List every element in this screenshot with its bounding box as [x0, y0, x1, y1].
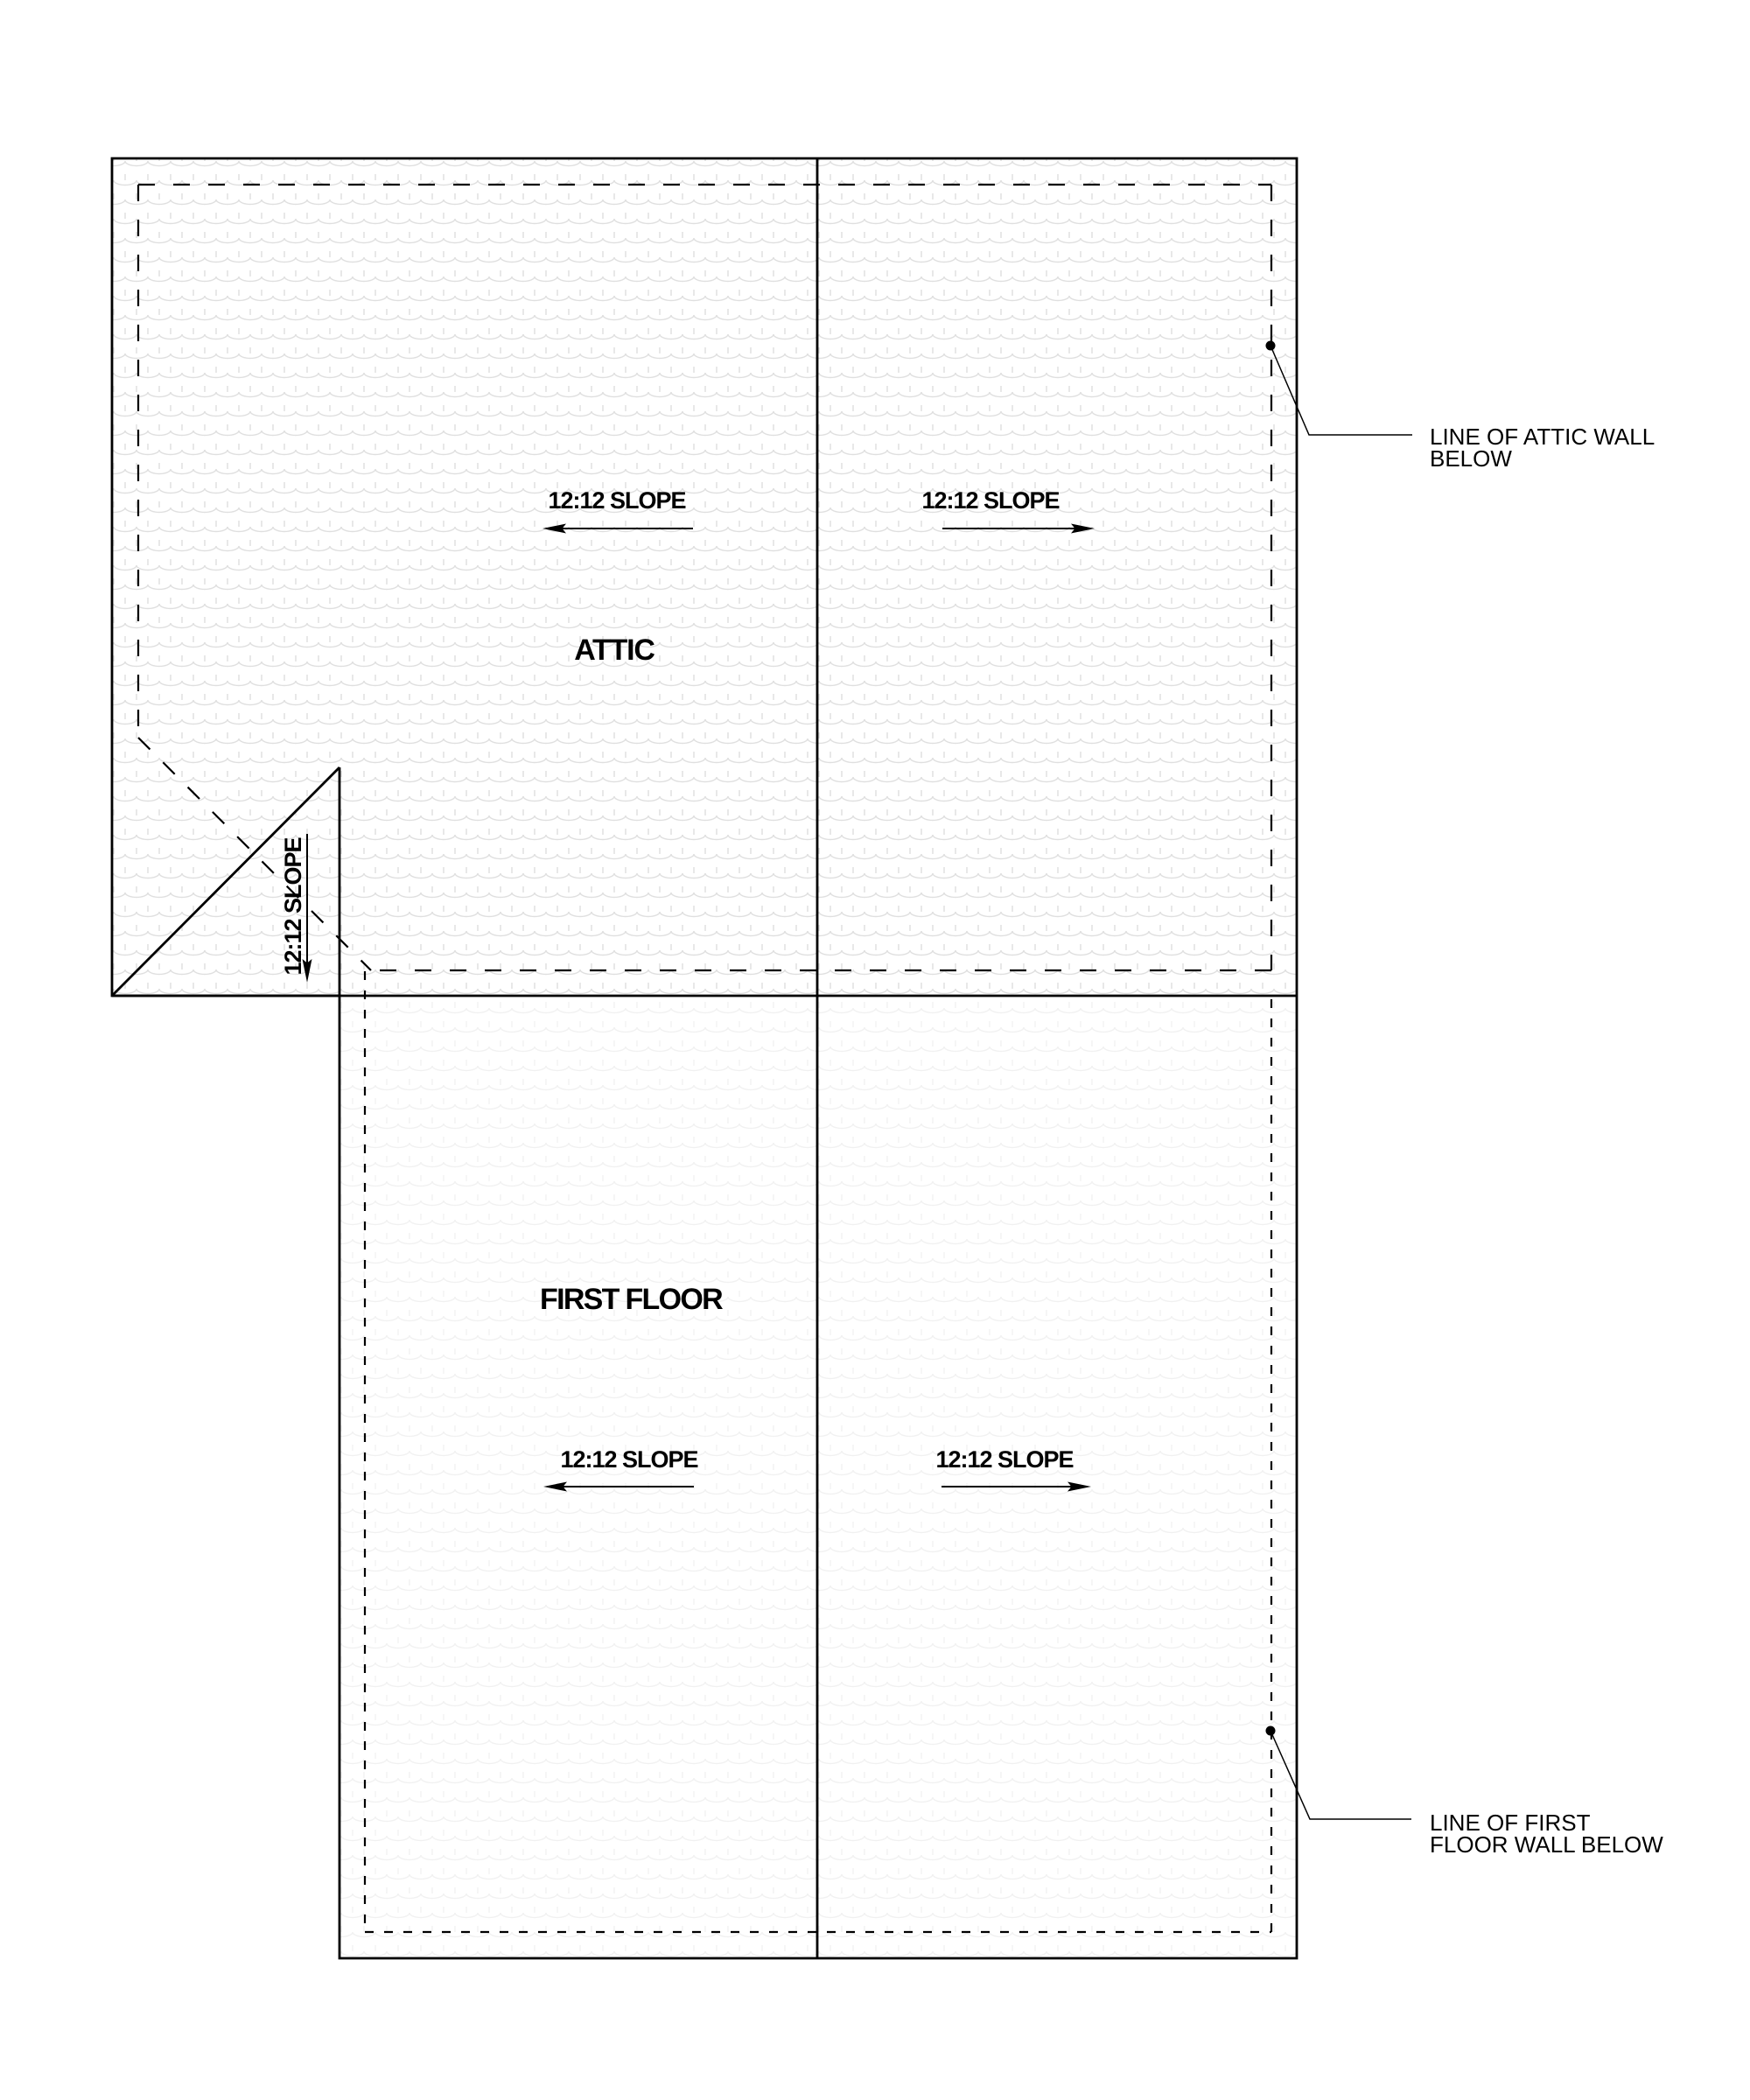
- svg-text:12:12 SLOPE: 12:12 SLOPE: [921, 487, 1059, 514]
- svg-text:12:12 SLOPE: 12:12 SLOPE: [280, 837, 306, 975]
- svg-text:ATTIC: ATTIC: [574, 633, 654, 667]
- svg-text:12:12 SLOPE: 12:12 SLOPE: [548, 487, 685, 514]
- svg-text:FIRST FLOOR: FIRST FLOOR: [540, 1283, 723, 1316]
- svg-text:BELOW: BELOW: [1430, 445, 1512, 472]
- svg-text:12:12 SLOPE: 12:12 SLOPE: [935, 1446, 1073, 1473]
- svg-text:12:12 SLOPE: 12:12 SLOPE: [560, 1446, 697, 1473]
- svg-text:FLOOR WALL BELOW: FLOOR WALL BELOW: [1430, 1831, 1663, 1858]
